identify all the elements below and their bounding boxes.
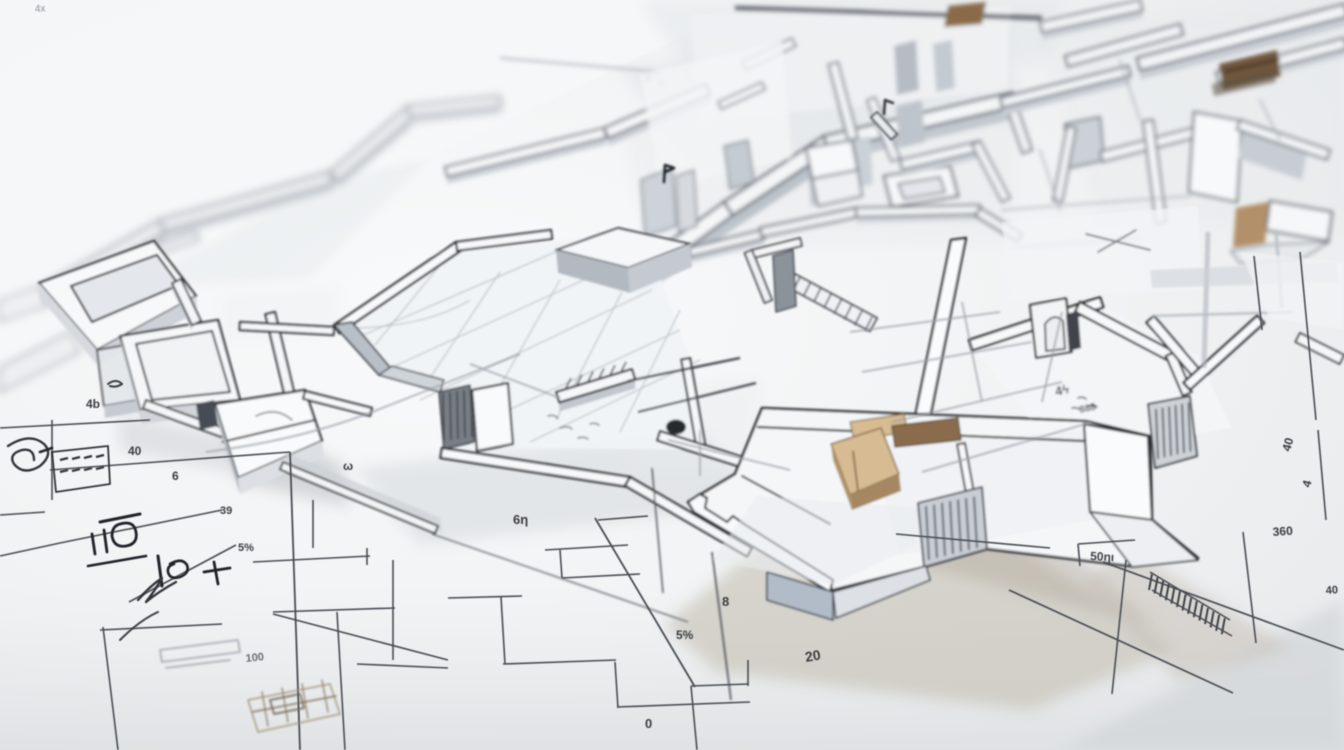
svg-text:ω: ω bbox=[343, 459, 353, 473]
svg-text:40: 40 bbox=[128, 444, 142, 458]
svg-text:39: 39 bbox=[220, 505, 232, 517]
svg-text:0: 0 bbox=[645, 716, 652, 731]
svg-text:40: 40 bbox=[1325, 584, 1338, 597]
svg-text:6: 6 bbox=[172, 469, 179, 483]
svg-text:4b: 4b bbox=[86, 397, 100, 411]
svg-text:5%: 5% bbox=[676, 628, 694, 642]
svg-text:100: 100 bbox=[245, 651, 265, 665]
svg-text:6η: 6η bbox=[513, 512, 528, 527]
svg-text:4x: 4x bbox=[35, 3, 46, 15]
svg-text:20: 20 bbox=[804, 646, 822, 664]
svg-text:8: 8 bbox=[722, 594, 729, 609]
svg-text:50ηι: 50ηι bbox=[1090, 549, 1115, 564]
svg-text:360: 360 bbox=[1272, 524, 1293, 539]
svg-text:5%: 5% bbox=[238, 542, 254, 554]
